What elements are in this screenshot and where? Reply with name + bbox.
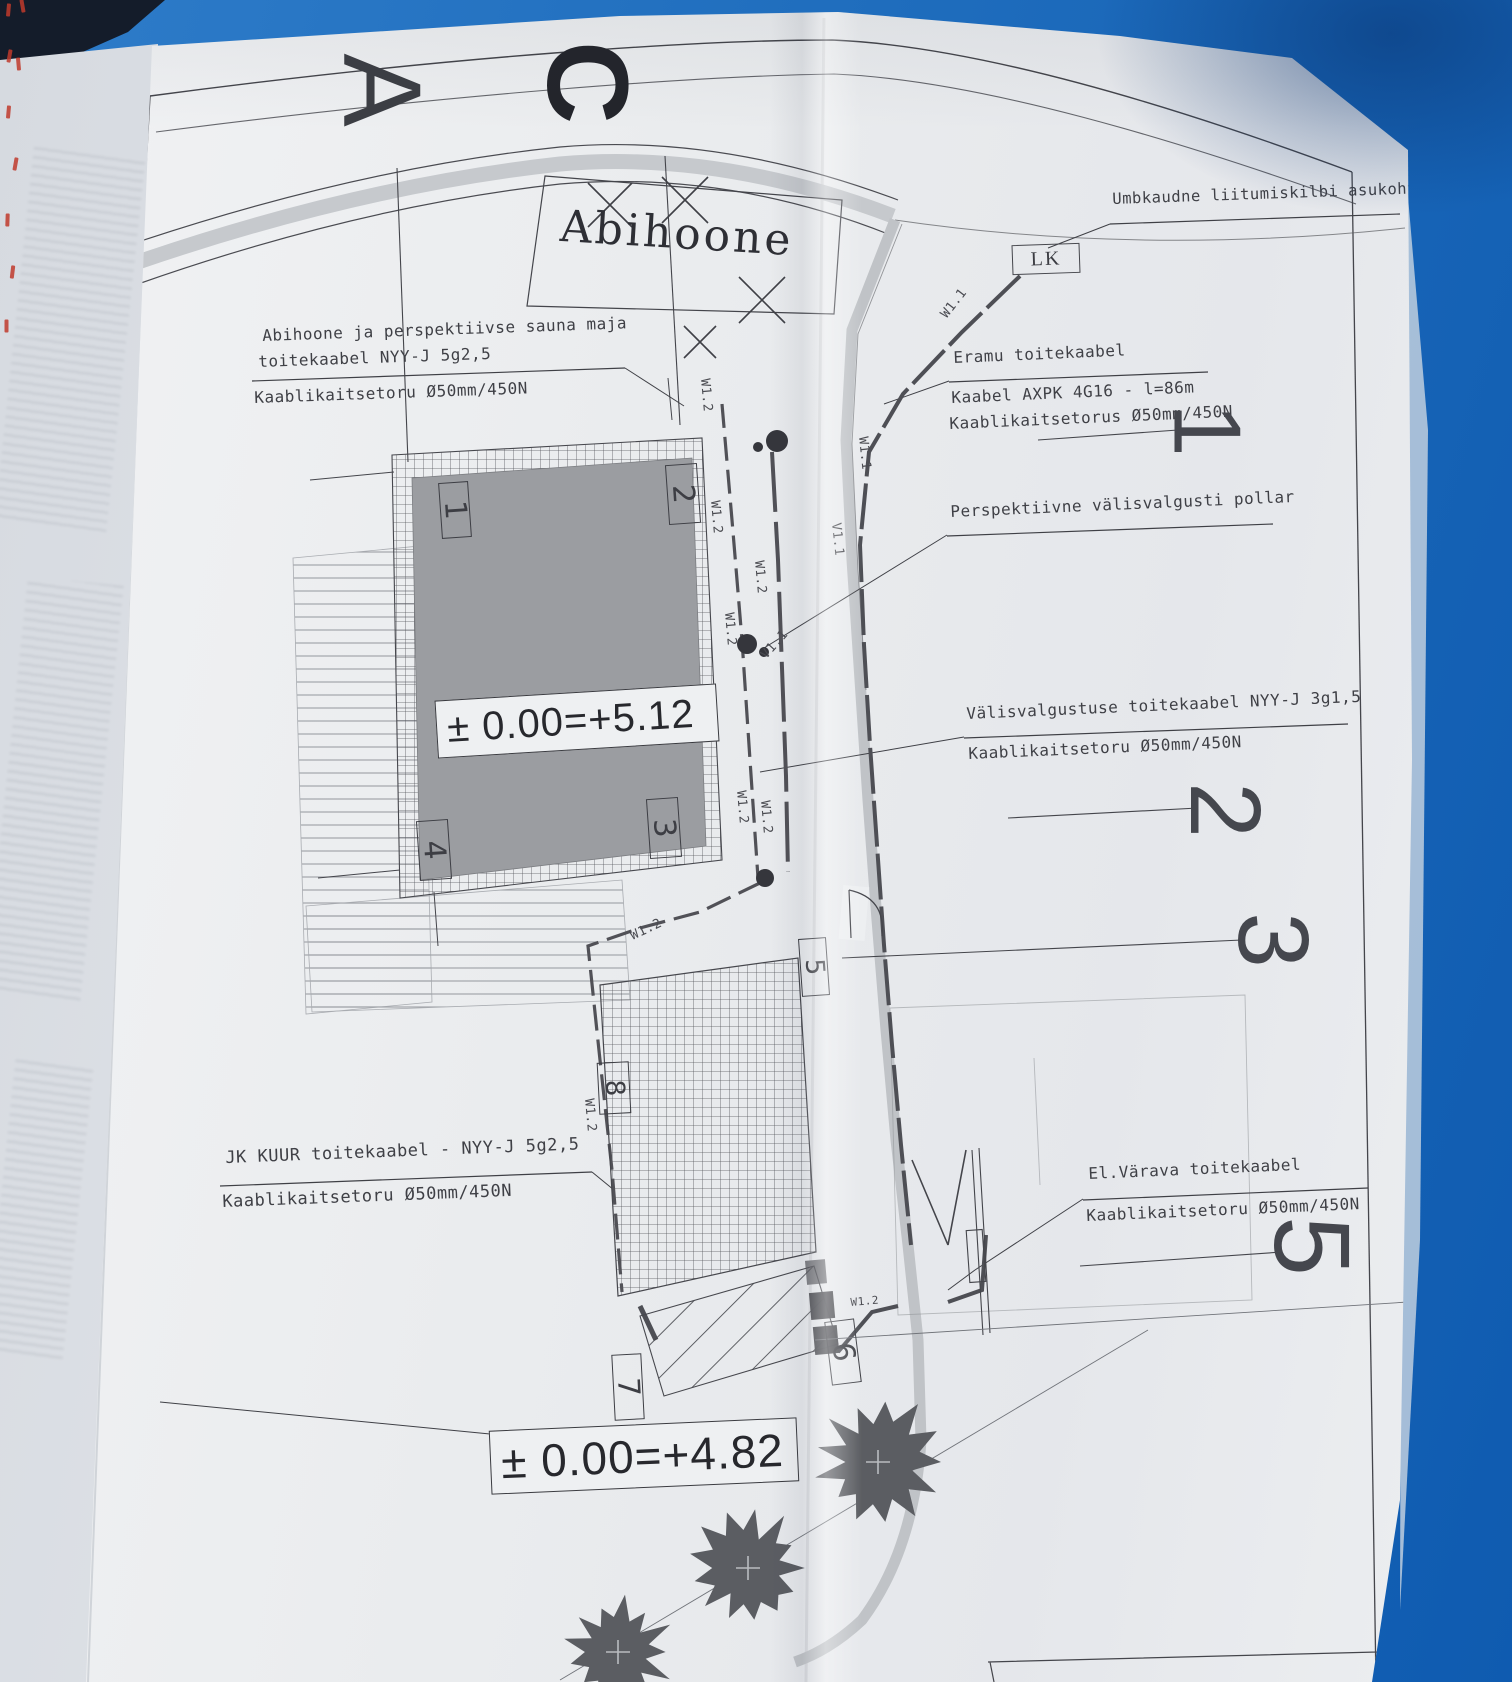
plan-sheet: Abihoone LK ± 0.00=+5.12 ± 0.00=+4.82 Um… bbox=[0, 0, 1512, 1682]
axis-a-line bbox=[397, 168, 408, 462]
gate-arrow bbox=[912, 1150, 966, 1245]
red-edge-mark bbox=[5, 213, 9, 226]
cable-tag: W1.2 bbox=[697, 378, 715, 412]
marker-digit: 6 bbox=[827, 1341, 859, 1364]
cable-tag: W1.2 bbox=[581, 1098, 599, 1132]
point-marker-1: 1 bbox=[438, 481, 472, 539]
point-marker-5: 5 bbox=[798, 937, 830, 997]
point-marker-8: 8 bbox=[597, 1061, 632, 1115]
title-block-corner bbox=[988, 1652, 1378, 1682]
photo-of-site-plan: Abihoone LK ± 0.00=+5.12 ± 0.00=+4.82 Um… bbox=[0, 0, 1512, 1682]
marker-digit: 8 bbox=[601, 1079, 628, 1097]
tree-canopy bbox=[564, 1595, 670, 1682]
cable-w12-b bbox=[772, 452, 788, 872]
elevation-label-yard: ± 0.00=+4.82 bbox=[489, 1417, 799, 1494]
axis-3-line bbox=[842, 940, 1242, 958]
cable-tag: W1.2 bbox=[751, 560, 769, 594]
jk-kuur-building bbox=[600, 958, 816, 1296]
cable-tag: W1.2 bbox=[733, 790, 751, 824]
axis-letter-c: C bbox=[529, 41, 644, 124]
frame-right-line bbox=[1352, 172, 1376, 1682]
marker-digit: 3 bbox=[648, 817, 679, 838]
axis-number-3: 3 bbox=[1223, 912, 1323, 968]
cable-tag: W1.2 bbox=[757, 800, 775, 834]
point-marker-3: 3 bbox=[646, 797, 682, 859]
marker-digit: 4 bbox=[418, 839, 449, 860]
door-gap bbox=[839, 885, 870, 941]
cable-tag: W1.2 bbox=[721, 612, 739, 646]
cable-tag: W1.2 bbox=[850, 1294, 880, 1309]
marker-digit: 7 bbox=[613, 1377, 644, 1398]
marker-digit: 2 bbox=[667, 483, 698, 504]
marker-digit: 5 bbox=[800, 958, 827, 976]
lk-connection-box: LK bbox=[1011, 243, 1080, 275]
axis-number-5: 5 bbox=[1258, 1216, 1366, 1276]
axis-c-line bbox=[665, 156, 680, 425]
point-marker-7: 7 bbox=[611, 1353, 644, 1420]
neighbor-plot-line bbox=[1034, 1058, 1040, 1185]
cable-tag: W1.2 bbox=[707, 500, 725, 534]
point-marker-2: 2 bbox=[665, 463, 701, 525]
site-line bbox=[815, 1302, 1408, 1340]
showthrough-text-block bbox=[0, 576, 124, 1004]
showthrough-text-block bbox=[0, 1057, 93, 1364]
marker-digit: 1 bbox=[439, 499, 470, 520]
fold-crease-line bbox=[806, 18, 824, 1682]
point-marker-4: 4 bbox=[416, 819, 452, 881]
axis-number-1: 1 bbox=[1159, 403, 1255, 456]
neighbor-plot-outline bbox=[890, 995, 1252, 1315]
showthrough-text-block bbox=[0, 145, 146, 535]
axis-number-2: 2 bbox=[1175, 782, 1275, 838]
red-edge-mark bbox=[5, 320, 9, 333]
axis-letter-a: A bbox=[327, 53, 437, 126]
